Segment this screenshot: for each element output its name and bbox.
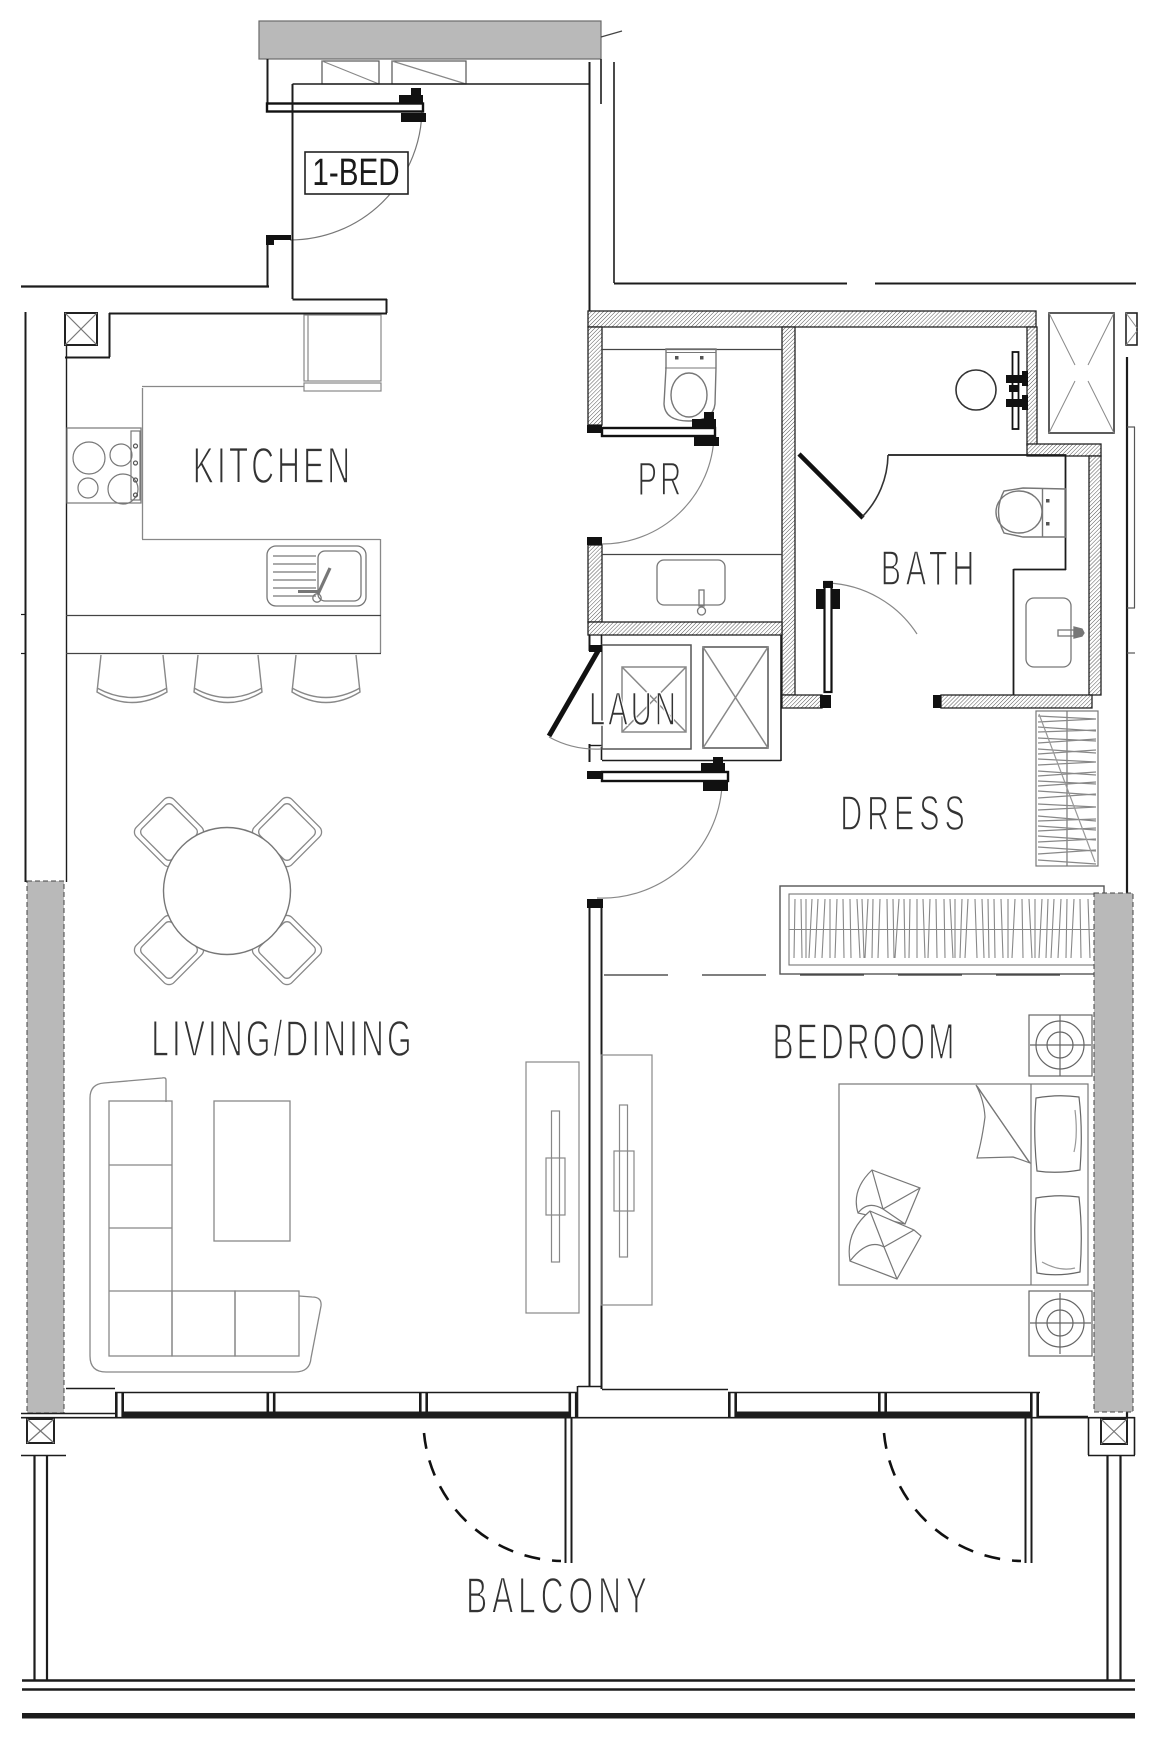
svg-text:DRESS: DRESS xyxy=(840,786,969,841)
svg-text:PR: PR xyxy=(638,454,685,506)
svg-text:BEDROOM: BEDROOM xyxy=(772,1013,957,1069)
svg-text:LIVING/DINING: LIVING/DINING xyxy=(151,1010,414,1066)
svg-text:BATH: BATH xyxy=(881,541,980,596)
svg-text:BALCONY: BALCONY xyxy=(466,1567,652,1623)
svg-text:LAUN: LAUN xyxy=(589,684,679,736)
svg-text:1-BED: 1-BED xyxy=(312,152,399,194)
svg-text:KITCHEN: KITCHEN xyxy=(193,437,353,493)
